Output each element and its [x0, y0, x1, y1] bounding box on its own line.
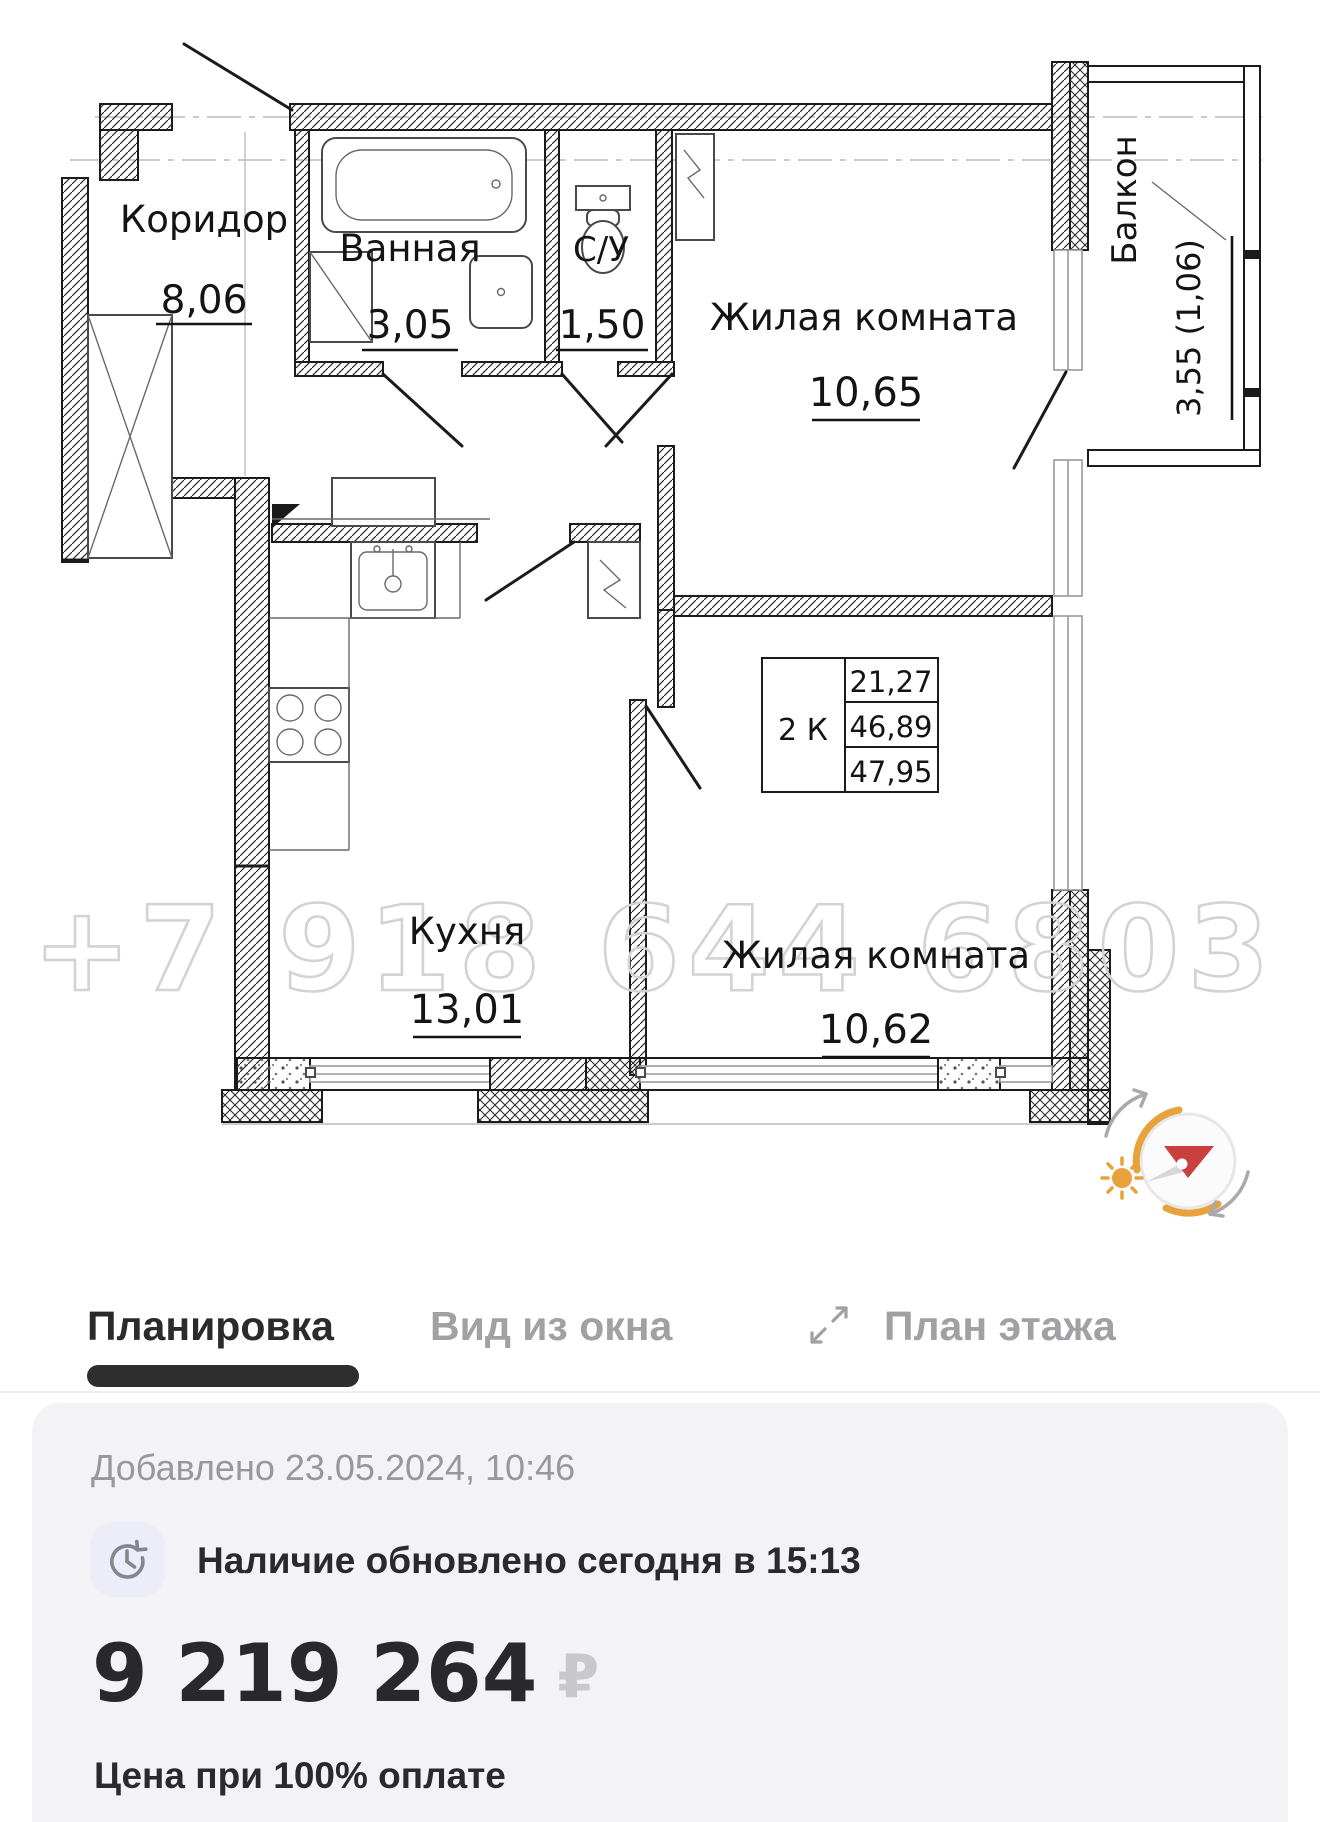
- sun-icon: [1102, 1158, 1142, 1198]
- compass-widget[interactable]: [1102, 1090, 1248, 1216]
- summary-total-area: 47,95: [849, 755, 932, 789]
- room-area-living-top: 10,65: [809, 370, 924, 416]
- room-name-living-top: Жилая комната: [710, 296, 1018, 339]
- floor-plan: +7 918 644 6803 Коридор 8,06 Ванная 3,05…: [0, 0, 1320, 1292]
- room-name-living-bottom: Жилая комната: [722, 934, 1030, 977]
- room-name-balcony: Балкон: [1105, 135, 1145, 264]
- tab-window-view[interactable]: Вид из окна: [430, 1303, 672, 1350]
- price-row: 9 219 264 ₽: [92, 1627, 599, 1720]
- tab-layout[interactable]: Планировка: [87, 1303, 334, 1350]
- room-area-wc: 1,50: [559, 303, 646, 348]
- summary-area: 46,89: [849, 710, 932, 744]
- wardrobe: [88, 315, 172, 558]
- room-name-bathroom: Ванная: [339, 227, 480, 270]
- summary-type: 2 К: [778, 713, 828, 748]
- availability-text: Наличие обновлено сегодня в 15:13: [197, 1540, 861, 1582]
- right-windows: [1054, 250, 1082, 890]
- currency-symbol: ₽: [557, 1642, 599, 1720]
- price-value: 9 219 264: [92, 1627, 537, 1720]
- info-table: 2 К 21,27 46,89 47,95: [762, 658, 938, 792]
- bottom-wall: [222, 1058, 1110, 1122]
- room-area-bathroom: 3,05: [367, 303, 454, 348]
- room-area-balcony: 3,55 (1,06): [1170, 239, 1208, 417]
- room-area-kitchen: 13,01: [410, 987, 525, 1033]
- price-note: Цена при 100% оплате: [94, 1755, 506, 1797]
- screen: +7 918 644 6803 Коридор 8,06 Ванная 3,05…: [0, 0, 1320, 1822]
- availability-clock-icon: [90, 1522, 165, 1597]
- room-area-living-bottom: 10,62: [819, 1007, 934, 1053]
- room-area-corridor: 8,06: [161, 278, 248, 323]
- active-tab-underline: [87, 1365, 359, 1387]
- summary-living-area: 21,27: [849, 665, 932, 699]
- room-name-wc: С/У: [573, 230, 629, 270]
- expand-icon[interactable]: [806, 1302, 852, 1348]
- watermark-phone: +7 918 644 6803: [32, 880, 1277, 1018]
- room-name-corridor: Коридор: [120, 198, 288, 241]
- listing-info-card: Добавлено 23.05.2024, 10:46 Наличие обно…: [32, 1403, 1288, 1822]
- added-date: Добавлено 23.05.2024, 10:46: [91, 1447, 575, 1489]
- tabs-divider: [0, 1391, 1320, 1393]
- tab-floor-plan[interactable]: План этажа: [884, 1303, 1116, 1350]
- room-name-kitchen: Кухня: [409, 910, 526, 953]
